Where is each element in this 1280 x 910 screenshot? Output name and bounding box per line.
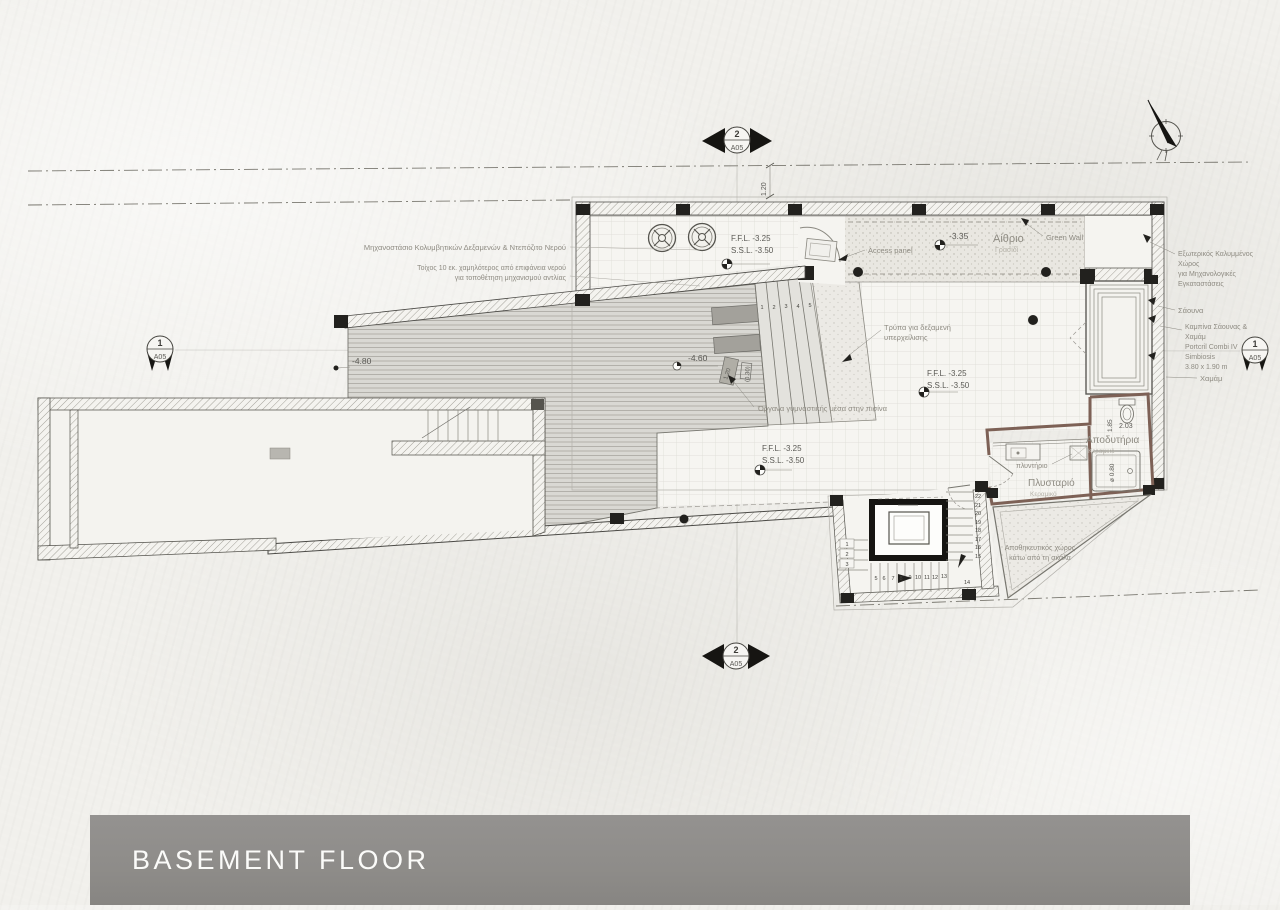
svg-text:19: 19 [975, 520, 981, 526]
gym-equipment-label: Όργανα γυμναστικής μέσα στην πισίνα [757, 404, 888, 413]
ffl-label-1: F.F.L. -3.25 [731, 234, 771, 243]
floor-plan-canvas: 2 A05 2 A05 1 A05 1 A05 1.20 [0, 0, 1280, 905]
toilet [1119, 399, 1135, 423]
cabin-line1: Καμπίνα Σάουνας & [1185, 323, 1248, 331]
changing-label: Αποδυτήρια [1086, 434, 1139, 446]
drawing-sheet: { "drawing": { "title": "BASEMENT FLOOR"… [0, 0, 1280, 905]
svg-text:5: 5 [874, 576, 877, 582]
svg-text:7: 7 [891, 576, 894, 582]
svg-text:11: 11 [924, 575, 930, 581]
section-left-sheet: A05 [154, 354, 167, 361]
svg-text:6: 6 [882, 576, 885, 582]
washer-label: πλυντήριο [1016, 463, 1048, 470]
covered-mech-space [1080, 216, 1159, 281]
svg-text:16: 16 [975, 545, 981, 551]
shower-dia-label: ø 0.80 [1109, 463, 1116, 482]
laundry-finish-label: Κεραμικό [1030, 490, 1057, 498]
storage-line1: Αποθηκευτικός χώρος [1005, 543, 1076, 552]
section-bottom-num: 2 [733, 645, 738, 655]
pump-note-line1: Τοίχος 10 εκ. χαμηλότερος από επιφάνεια … [417, 264, 566, 272]
svg-text:9: 9 [908, 575, 911, 581]
storage-line2: κάτω από τη σκάλα [1009, 553, 1071, 562]
section-marker-top: 2 A05 [702, 127, 772, 153]
ssl-label-3: S.S.L. -3.50 [762, 456, 805, 465]
svg-text:12: 12 [932, 575, 938, 581]
changing-finish-label: Κεραμικό [1088, 447, 1115, 455]
svg-text:1: 1 [845, 542, 848, 548]
level-335-label: -3.35 [949, 231, 969, 241]
svg-text:8: 8 [899, 576, 902, 582]
green-wall-label: Green Wall [1046, 233, 1084, 242]
dim-120-label: 1.20 [761, 182, 768, 196]
section-top-num: 2 [734, 129, 739, 139]
atrium-label: Αίθριο [993, 233, 1024, 245]
svg-text:4: 4 [796, 304, 799, 310]
section-right-sheet: A05 [1249, 355, 1262, 362]
title-bar: BASEMENT FLOOR [90, 815, 1190, 905]
ffl-label-3: F.F.L. -3.25 [762, 444, 802, 453]
section-left-num: 1 [157, 338, 162, 348]
svg-text:2: 2 [772, 305, 775, 311]
svg-text:1: 1 [760, 305, 763, 311]
dim-185-label: 1.85 [1107, 419, 1114, 432]
section-top-sheet: A05 [731, 145, 744, 152]
ffl-label-2: F.F.L. -3.25 [927, 369, 967, 378]
section-right-num: 1 [1252, 339, 1257, 349]
sheet-title: BASEMENT FLOOR [132, 845, 430, 876]
machinery-room-label: Μηχανοστάσιο Κολυμβητικών Δεξαμενών & Ντ… [364, 243, 566, 252]
section-marker-left: 1 A05 [147, 336, 173, 371]
svg-text:14: 14 [964, 580, 970, 586]
north-arrow-icon [1148, 100, 1183, 161]
ssl-label-2: S.S.L. -3.50 [927, 381, 970, 390]
ext-space-line2: Χώρος [1178, 260, 1200, 268]
svg-text:5: 5 [808, 303, 811, 309]
overflow-line2: υπερχείλισης [884, 333, 928, 342]
svg-text:13: 13 [941, 574, 947, 580]
ext-space-line1: Εξωτερικός Καλυμμένος [1178, 250, 1254, 258]
overflow-line1: Τρύπα για δεξαμενή [884, 323, 951, 332]
section-marker-bottom: 2 A05 [702, 643, 770, 669]
ext-space-line3: για Μηχανολογικές [1178, 270, 1237, 278]
cabin-line3: Portcril Combi IV [1185, 344, 1238, 351]
level-460-label: -4.60 [688, 353, 708, 363]
svg-text:3: 3 [784, 304, 787, 310]
svg-text:2: 2 [845, 552, 848, 558]
sauna-label: Σάουνα [1178, 306, 1204, 315]
atrium-finish-label: Γρασίδι [995, 246, 1019, 254]
cabin-line5: 3.80 x 1.90 m [1185, 364, 1228, 371]
svg-text:21: 21 [975, 503, 981, 509]
access-panel-label: Access panel [868, 246, 913, 255]
pump-note-line2: για τοποθέτηση μηχανισμού αντλίας [455, 274, 567, 282]
section-marker-right: 1 A05 [1242, 337, 1268, 371]
svg-text:10: 10 [915, 575, 921, 581]
svg-text:18: 18 [975, 528, 981, 534]
dimension-top: 1.20 [761, 163, 774, 199]
cabin-line2: Χαμάμ [1185, 333, 1206, 341]
laundry-label: Πλυσταριό [1028, 477, 1075, 489]
svg-text:15: 15 [975, 554, 981, 560]
cabin-line4: Simbiosis [1185, 354, 1215, 361]
svg-text:17: 17 [975, 537, 981, 543]
dim-203-label: 2.03 [1119, 423, 1133, 430]
svg-text:3: 3 [845, 562, 848, 568]
equip-dim-b: (0.30) [745, 366, 752, 382]
svg-text:20: 20 [975, 511, 981, 517]
level-480-label: -4.80 [352, 356, 372, 366]
ext-space-line4: Εγκαταστάσεις [1178, 280, 1224, 288]
ssl-label-1: S.S.L. -3.50 [731, 246, 774, 255]
section-bottom-sheet: A05 [730, 661, 743, 668]
svg-text:22: 22 [975, 494, 981, 500]
hammam-label: Χαμάμ [1200, 374, 1222, 383]
